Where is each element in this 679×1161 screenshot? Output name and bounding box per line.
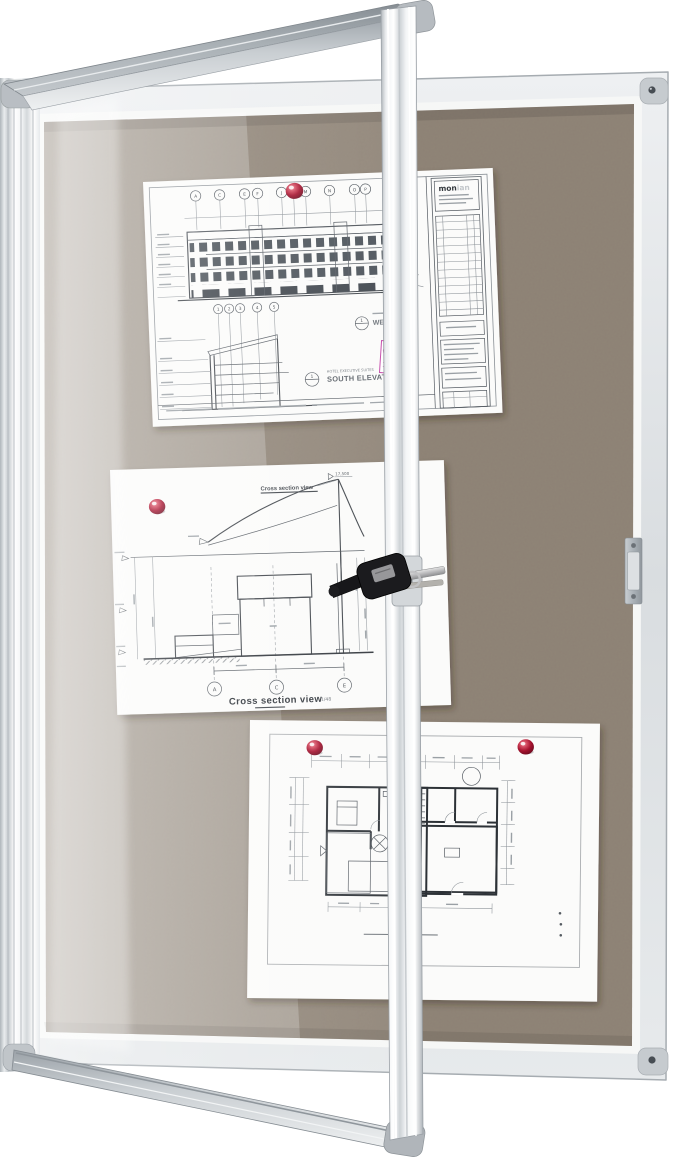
logo-bold: mon	[438, 183, 457, 193]
corner-screw-bottom-right	[648, 1056, 655, 1063]
logo-light: ian	[457, 183, 470, 193]
screw-highlight	[650, 88, 652, 90]
corner-screw-top-right	[648, 86, 655, 93]
glass-reflection	[50, 98, 130, 1052]
logo-monian: monian	[438, 183, 470, 193]
notice-board-scene: A C E F J M N O P	[0, 0, 679, 1161]
lock-catch-plate	[625, 538, 642, 604]
catch-screw-bottom	[631, 594, 636, 599]
door-hinge-stile	[0, 78, 40, 1072]
catch-screw-top	[631, 543, 636, 548]
product-photo: A C E F J M N O P	[0, 0, 679, 1161]
